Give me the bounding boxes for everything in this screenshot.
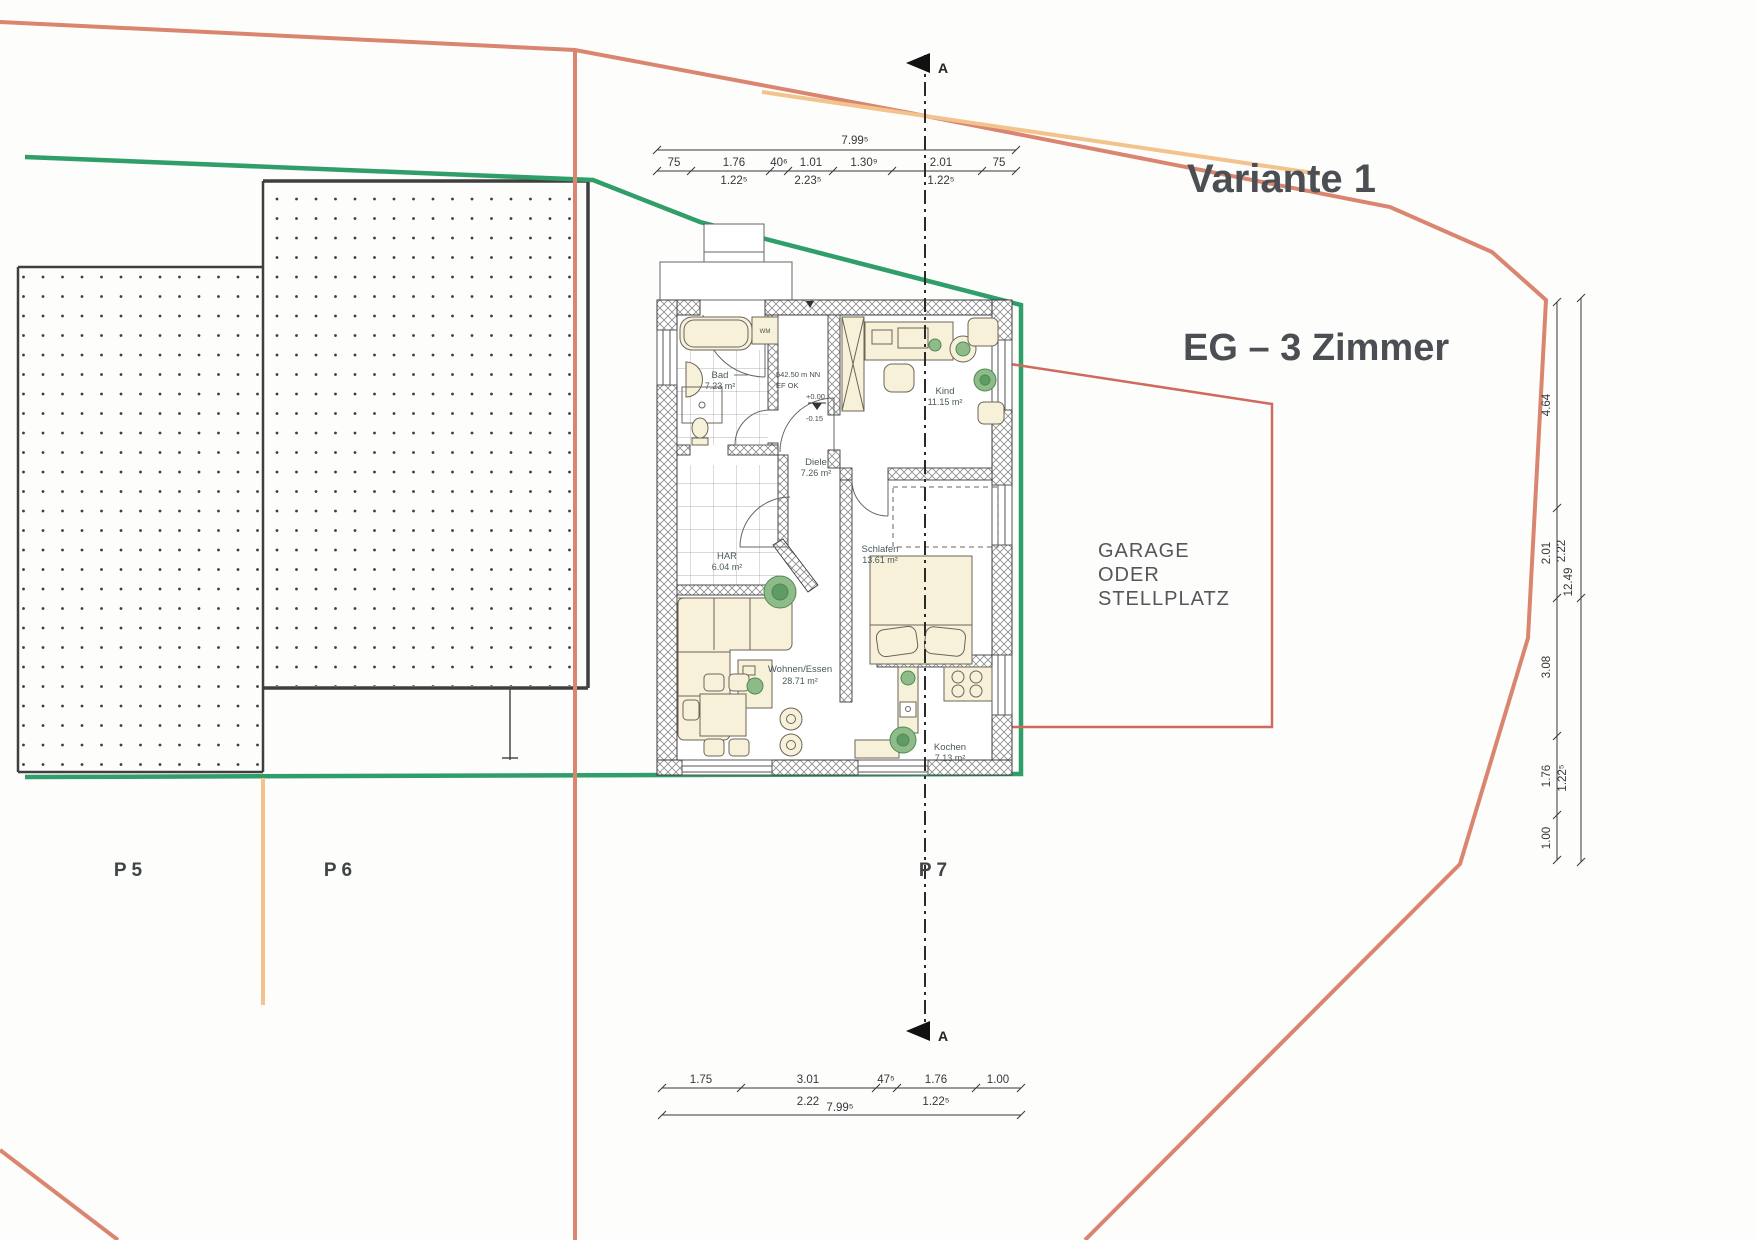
kitchen-sink bbox=[900, 702, 916, 717]
stool bbox=[780, 734, 802, 756]
section-arrow-icon bbox=[906, 53, 930, 73]
entry-porch bbox=[660, 224, 792, 300]
room-area-schlafen: 13.61 m² bbox=[862, 555, 898, 565]
dim-value: 3.01 bbox=[797, 1074, 819, 1086]
room-label-wohnen: Wohnen/Essen bbox=[768, 664, 832, 675]
garage-label: GARAGE ODER STELLPLATZ bbox=[1098, 540, 1230, 610]
title-variant: Variante 1 bbox=[1187, 157, 1376, 201]
seat bbox=[968, 318, 998, 346]
wall bbox=[677, 585, 775, 595]
room-label-bad: Bad bbox=[712, 370, 729, 381]
wall bbox=[657, 385, 677, 760]
parcel-labels: P 5 P 6 P 7 bbox=[114, 860, 947, 881]
dim-value: 75 bbox=[993, 157, 1006, 169]
wall bbox=[772, 760, 858, 775]
dim-value: 75 bbox=[668, 157, 681, 169]
wall bbox=[840, 468, 852, 480]
dim-total-bottom: 7.99⁵ bbox=[826, 1102, 853, 1114]
wall bbox=[657, 760, 682, 775]
room-area-har: 6.04 m² bbox=[712, 562, 743, 572]
dimension-chain-bottom: 1.75 3.01 47⁵ 1.76 1.00 2.22 1.22⁵ 7.99⁵ bbox=[658, 1074, 1025, 1119]
site-plan-drawing: Bad 7.23 m² Diele 7.26 m² Kind 11.15 m² … bbox=[0, 0, 1755, 1240]
washing-machine-label: WM bbox=[760, 329, 771, 335]
wall bbox=[657, 300, 677, 330]
canopy bbox=[660, 262, 792, 300]
chair bbox=[704, 739, 724, 756]
plant-icon bbox=[901, 671, 915, 685]
dim-value: 1.01 bbox=[800, 157, 822, 169]
window-right-kochen bbox=[992, 655, 1012, 715]
level-upper: +0.00 bbox=[806, 392, 825, 401]
dim-total-top: 7.99⁵ bbox=[841, 135, 868, 147]
dimension-chain-top: 7.99⁵ 75 1.76 40⁶ 1.01 1.30⁹ 2.01 75 1.2… bbox=[653, 135, 1020, 187]
dim-value: 1.00 bbox=[987, 1074, 1009, 1086]
pillow bbox=[924, 626, 967, 657]
wall bbox=[677, 445, 690, 455]
dim-value: 1.76 bbox=[723, 157, 745, 169]
porch bbox=[704, 224, 764, 262]
chair bbox=[704, 674, 724, 691]
dotted-fill bbox=[21, 271, 261, 770]
plant-icon bbox=[956, 342, 970, 356]
room-area-kind: 11.15 m² bbox=[928, 397, 963, 407]
dim-subvalue: 1.22⁵ bbox=[927, 175, 954, 187]
toilet-tank bbox=[692, 438, 708, 445]
dimension-chain-right: 4.64 2.01 3.08 1.76 1.00 1.22⁵ 2.22 12.4… bbox=[1541, 294, 1585, 866]
plant-icon bbox=[747, 678, 763, 694]
plant-icon bbox=[929, 339, 941, 351]
room-label-schlafen: Schlafen bbox=[862, 544, 899, 555]
dim-subvalue: 2.22 bbox=[797, 1096, 819, 1108]
room-label-har: HAR bbox=[717, 551, 737, 562]
dim-value: 1.30⁹ bbox=[850, 157, 877, 169]
dim-value: 3.08 bbox=[1541, 656, 1553, 678]
room-label-diele: Diele bbox=[805, 457, 827, 468]
parcel-label-p6: P 6 bbox=[324, 860, 352, 881]
wall bbox=[828, 450, 840, 468]
title-floor: EG – 3 Zimmer bbox=[1183, 327, 1449, 369]
wall bbox=[765, 300, 1012, 315]
chair bbox=[683, 700, 699, 720]
room-area-diele: 7.26 m² bbox=[801, 468, 832, 478]
window-bottom-kitchen bbox=[858, 760, 928, 775]
level-ref: EF OK bbox=[776, 381, 799, 390]
terrace-door bbox=[682, 760, 772, 775]
dim-value: 2.22 bbox=[1556, 540, 1568, 562]
dotted-fill bbox=[265, 183, 586, 686]
garage-label-line1: GARAGE bbox=[1098, 540, 1190, 562]
dining-table bbox=[700, 694, 746, 736]
dim-value: 1.76 bbox=[1541, 765, 1553, 787]
pillow bbox=[875, 625, 918, 657]
plant-icon bbox=[897, 734, 909, 746]
dim-subvalue: 2.23⁵ bbox=[794, 175, 821, 187]
desk-items bbox=[898, 328, 928, 348]
site-plan-canvas: Bad 7.23 m² Diele 7.26 m² Kind 11.15 m² … bbox=[0, 0, 1755, 1240]
desk-chair bbox=[884, 364, 914, 392]
section-marker-top: A bbox=[906, 53, 948, 76]
dim-value: 1.00 bbox=[1541, 827, 1553, 849]
dim-value: 40⁶ bbox=[770, 157, 788, 169]
wall bbox=[728, 445, 778, 455]
room-area-wohnen: 28.71 m² bbox=[782, 676, 818, 686]
dim-subvalue: 1.22⁵ bbox=[922, 1096, 949, 1108]
dim-value: 1.76 bbox=[925, 1074, 947, 1086]
parcel-label-p5: P 5 bbox=[114, 860, 143, 881]
chair bbox=[729, 674, 749, 691]
boundary-red-corner-line bbox=[0, 1150, 118, 1240]
dim-subvalue: 1.22⁵ bbox=[720, 175, 747, 187]
dim-value: 2.01 bbox=[930, 157, 952, 169]
room-label-kind: Kind bbox=[935, 386, 954, 397]
bathtub bbox=[680, 317, 752, 350]
room-area-kochen: 7.13 m² bbox=[935, 753, 966, 763]
section-letter: A bbox=[938, 1028, 948, 1044]
section-letter: A bbox=[938, 60, 948, 76]
parcel-label-p7: P 7 bbox=[919, 860, 947, 881]
garage-label-line2: ODER bbox=[1098, 564, 1160, 586]
level-lower: -0.15 bbox=[806, 414, 823, 423]
section-marker-bottom: A bbox=[906, 1021, 948, 1044]
seat bbox=[978, 402, 1004, 424]
room-label-kochen: Kochen bbox=[934, 742, 966, 753]
level-altitude: 542.50 m NN bbox=[776, 370, 820, 379]
room-area-bad: 7.23 m² bbox=[705, 381, 736, 391]
stool bbox=[780, 708, 802, 730]
dim-value: 4.64 bbox=[1541, 393, 1553, 416]
kitchen-counter bbox=[944, 667, 992, 701]
window-right-schlafen bbox=[992, 485, 1012, 545]
wall bbox=[888, 468, 992, 480]
terrace-dotted-area-left bbox=[18, 267, 263, 772]
plant-icon bbox=[772, 584, 788, 600]
dim-value: 1.75 bbox=[690, 1074, 712, 1086]
dim-total-right: 12.49 bbox=[1563, 568, 1575, 597]
wall bbox=[840, 480, 852, 702]
plant-icon bbox=[980, 375, 990, 385]
terrace-dotted-area-right bbox=[263, 181, 588, 772]
dim-value: 2.01 bbox=[1541, 542, 1553, 564]
toilet bbox=[692, 418, 708, 438]
window-left bbox=[657, 330, 677, 385]
monitor bbox=[872, 330, 892, 344]
section-arrow-icon bbox=[906, 1021, 930, 1041]
wall bbox=[778, 455, 788, 545]
survey-tick bbox=[502, 688, 518, 760]
house-floorplan: Bad 7.23 m² Diele 7.26 m² Kind 11.15 m² … bbox=[657, 224, 1012, 775]
chair bbox=[729, 739, 749, 756]
dim-value: 47⁵ bbox=[877, 1074, 895, 1086]
wall bbox=[992, 545, 1012, 655]
dim-subvalue: 1.22⁵ bbox=[1557, 764, 1569, 791]
garage-label-line3: STELLPLATZ bbox=[1098, 588, 1230, 610]
